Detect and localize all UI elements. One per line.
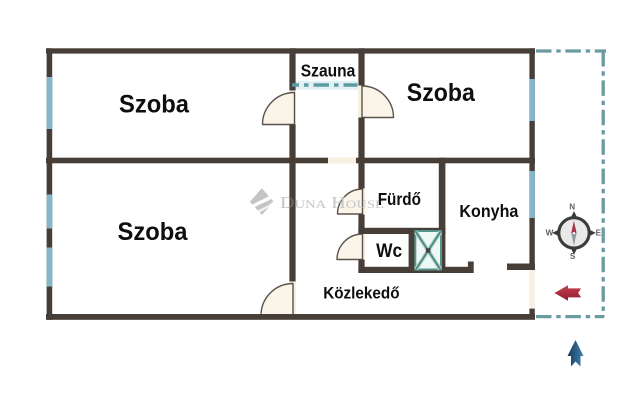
svg-text:Duna House: Duna House [280, 193, 384, 212]
svg-text:W: W [546, 228, 554, 237]
svg-text:Szoba: Szoba [119, 91, 189, 118]
svg-text:Szauna: Szauna [301, 60, 356, 80]
svg-text:E: E [596, 228, 602, 237]
svg-text:Szoba: Szoba [118, 219, 188, 246]
svg-text:Közlekedő: Közlekedő [323, 285, 399, 303]
svg-text:Fürdő: Fürdő [378, 189, 421, 209]
svg-text:Szoba: Szoba [407, 80, 475, 107]
svg-text:Konyha: Konyha [459, 201, 518, 221]
svg-text:Wc: Wc [376, 241, 402, 262]
svg-text:N: N [569, 202, 575, 211]
svg-text:S: S [570, 252, 576, 261]
